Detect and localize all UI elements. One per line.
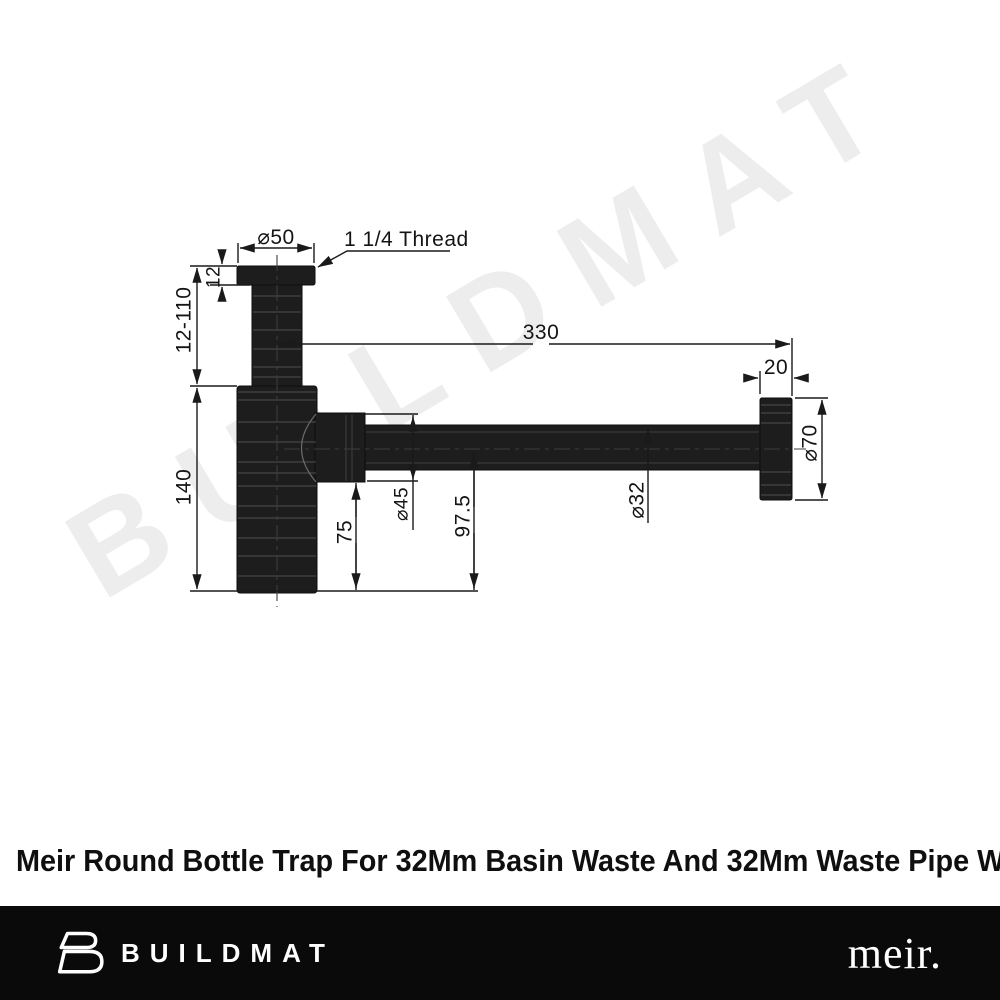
dim-centre-height: 97.5	[452, 495, 475, 538]
inlet-flange	[237, 266, 315, 285]
dim-flange-height: 12	[204, 266, 225, 288]
dim-flange-diameter: ⌀50	[257, 226, 295, 249]
buildmat-wordmark: BUILDMAT	[121, 938, 335, 969]
dim-thread-note: 1 1/4 Thread	[344, 228, 469, 251]
buildmat-brand: BUILDMAT	[55, 930, 335, 976]
dim-reach: 330	[523, 321, 560, 344]
technical-drawing: ⌀50 1 1/4 Thread 12 12-110 140 330 20 ⌀7…	[0, 0, 1000, 830]
dim-wall-flange-diameter: ⌀70	[799, 424, 822, 462]
product-spec-page: BUILDMAT	[0, 0, 1000, 1000]
dim-outlet-nut-diameter: ⌀45	[392, 487, 413, 521]
outlet-nut	[315, 413, 365, 482]
dim-pipe-diameter: ⌀32	[626, 481, 649, 519]
dim-wall-flange-depth: 20	[764, 356, 788, 379]
dim-body-height: 140	[173, 469, 196, 506]
meir-logo: meir.	[848, 928, 942, 979]
dim-inlet-height-range: 12-110	[173, 287, 196, 354]
product-title: Meir Round Bottle Trap For 32Mm Basin Wa…	[16, 843, 1000, 879]
footer-bar: BUILDMAT meir.	[0, 906, 1000, 1000]
bottle-trap-body	[237, 266, 792, 593]
buildmat-b-icon	[55, 930, 105, 976]
dim-outlet-drop: 75	[334, 520, 357, 544]
